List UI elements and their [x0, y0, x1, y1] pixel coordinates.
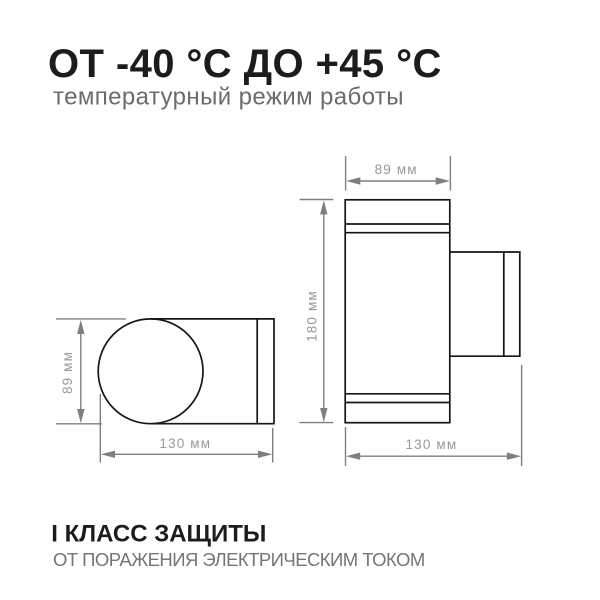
- svg-text:89 мм: 89 мм: [60, 351, 75, 394]
- svg-text:ОТ ПОРАЖЕНИЯ ЭЛЕКТРИЧЕСКИМ ТОК: ОТ ПОРАЖЕНИЯ ЭЛЕКТРИЧЕСКИМ ТОКОМ: [53, 549, 425, 570]
- svg-text:ОТ -40 °C ДО +45 °C: ОТ -40 °C ДО +45 °C: [48, 42, 442, 86]
- svg-text:I КЛАСС ЗАЩИТЫ: I КЛАСС ЗАЩИТЫ: [51, 520, 266, 547]
- svg-text:температурный режим работы: температурный режим работы: [53, 84, 404, 111]
- svg-text:130 мм: 130 мм: [406, 437, 458, 452]
- svg-text:89 мм: 89 мм: [375, 162, 418, 177]
- svg-text:180 мм: 180 мм: [304, 290, 319, 342]
- svg-text:130 мм: 130 мм: [159, 436, 211, 451]
